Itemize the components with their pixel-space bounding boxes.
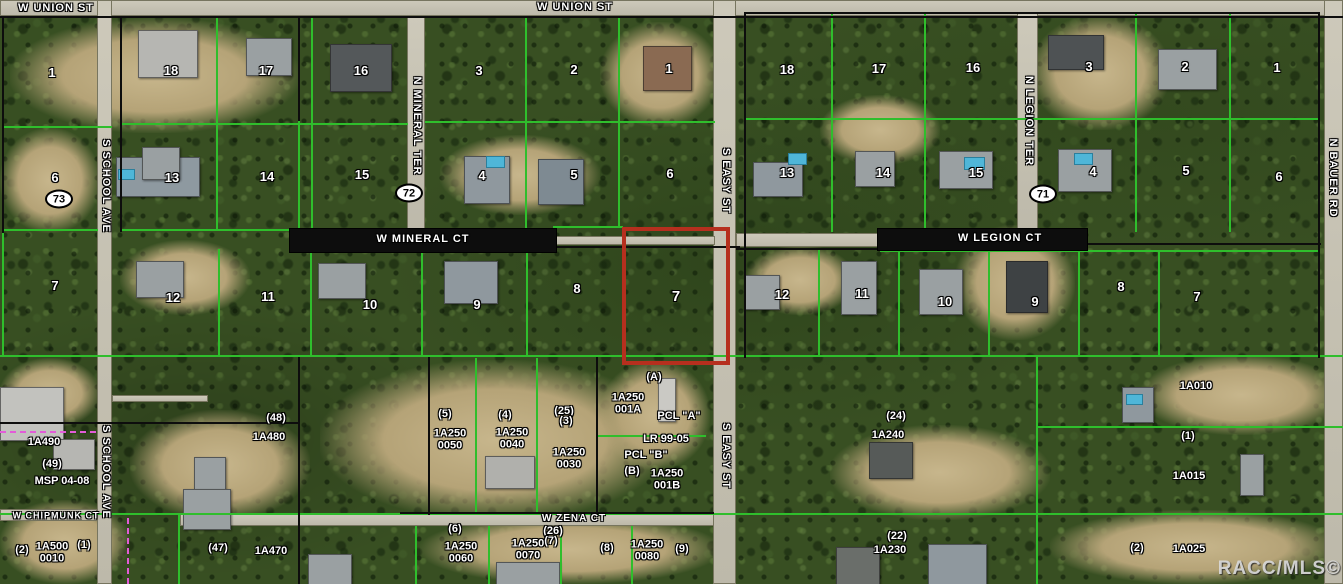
lot-number-13: 13: [780, 166, 794, 180]
lot-number-4: 4: [478, 169, 485, 183]
lot-number-18: 18: [780, 63, 794, 77]
section-marker-73: 73: [45, 190, 73, 209]
parcel-id-5: (5): [438, 409, 451, 421]
boundary-line: [1318, 12, 1320, 358]
street-label-w-zena-ct: W ZENA CT: [542, 514, 606, 525]
house: [183, 489, 231, 530]
parcel-line: [415, 526, 417, 584]
parcel-id-msp-04-08: MSP 04-08: [35, 476, 90, 488]
clearing: [830, 425, 1050, 520]
parcel-id-b: (B): [624, 466, 639, 478]
parcel-line: [488, 526, 490, 584]
parcel-line: [526, 249, 528, 357]
boundary-line: [0, 16, 1343, 18]
parcel-line: [310, 249, 312, 357]
house: [1122, 387, 1154, 423]
house: [753, 162, 803, 197]
lot-number-15: 15: [355, 168, 369, 182]
parcel-line: [120, 123, 408, 125]
house: [318, 263, 366, 299]
boundary-line: [120, 16, 122, 232]
parcel-id-2: (2): [1130, 543, 1143, 555]
house: [928, 544, 987, 584]
boundary-line: [2, 16, 4, 233]
parcel-id-1: (1): [1181, 431, 1194, 443]
boundary-line: [744, 12, 1320, 14]
pool: [486, 156, 505, 168]
street-label-n-mineral-ter: N MINERAL TER: [410, 77, 422, 176]
pool: [1126, 394, 1143, 405]
house: [1006, 261, 1048, 313]
parcel-id-1a490: 1A490: [28, 437, 60, 449]
lot-number-10: 10: [938, 295, 952, 309]
parcel-id-lr-99-05: LR 99-05: [643, 434, 689, 446]
lot-number-14: 14: [260, 170, 274, 184]
parcel-id-1a250-0080: 1A250 0080: [631, 539, 663, 562]
lot-number-11: 11: [261, 290, 275, 304]
parcel-id-1a500-0010: 1A500 0010: [36, 541, 68, 564]
parcel-id-1a015: 1A015: [1173, 471, 1205, 483]
boundary-line: [744, 12, 746, 358]
section-marker-71: 71: [1029, 185, 1057, 204]
boundary-line: [298, 357, 300, 584]
lot-number-15: 15: [969, 166, 983, 180]
parcel-line: [1078, 250, 1080, 357]
parcel-id-6: (6): [448, 524, 461, 536]
parcel-id-22: (22): [887, 531, 907, 543]
parcel-id-47: (47): [208, 543, 228, 555]
parcel-id-1a250-0030: 1A250 0030: [553, 447, 585, 470]
parcel-id-pcl-b: PCL "B": [624, 450, 667, 462]
parcel-line: [898, 250, 900, 357]
road-n-bauer-rd: [1324, 0, 1343, 584]
parcel-line: [311, 16, 313, 231]
boundary-line: [596, 357, 598, 515]
house: [496, 562, 560, 584]
lot-number-16: 16: [966, 61, 980, 75]
lot-number-6: 6: [1275, 170, 1282, 184]
highlighted-parcel: 7: [622, 227, 730, 365]
street-label-n-legion-ter: N LEGION TER: [1022, 76, 1034, 166]
lot-number-6: 6: [666, 167, 673, 181]
parcel-id-1: (1): [77, 540, 90, 552]
street-label-w-union-st: W UNION ST: [537, 2, 613, 14]
clearing: [1140, 355, 1343, 435]
lot-number-8: 8: [573, 282, 580, 296]
road-w-zena-ct: [180, 514, 714, 526]
parcel-id-8: (8): [600, 543, 613, 555]
driveway: [112, 395, 208, 402]
lot-number-12: 12: [775, 288, 789, 302]
parcel-line: [298, 120, 300, 230]
parcel-line: [120, 229, 292, 231]
parcel-line: [2, 229, 98, 231]
parcel-id-1a250-0040: 1A250 0040: [496, 427, 528, 450]
parcel-line: [988, 250, 990, 357]
street-label-s-easy-st: S EASY ST: [719, 423, 731, 489]
section-marker-72: 72: [395, 184, 423, 203]
parcel-line: [831, 12, 833, 232]
survey-line: [0, 431, 96, 433]
parcel-id-9: (9): [675, 544, 688, 556]
parcel-id-48: (48): [266, 413, 286, 425]
highlighted-parcel-number: 7: [672, 288, 680, 305]
house: [1240, 454, 1264, 496]
lot-number-16: 16: [354, 64, 368, 78]
parcel-id-1a250-001b: 1A250 001B: [651, 468, 683, 491]
lot-number-3: 3: [475, 64, 482, 78]
street-label-w-chipmunk-ct: W CHIPMUNK CT: [13, 511, 100, 520]
survey-line: [127, 518, 129, 584]
lot-number-17: 17: [259, 64, 273, 78]
parcel-id-1a250-0050: 1A250 0050: [434, 428, 466, 451]
house: [1048, 35, 1104, 70]
lot-number-2: 2: [570, 63, 577, 77]
parcel-id-7: (7): [544, 536, 557, 548]
house: [485, 456, 535, 489]
parcel-line: [178, 515, 180, 584]
lot-number-5: 5: [1182, 164, 1189, 178]
lot-number-6: 6: [51, 171, 58, 185]
clearing: [1030, 15, 1170, 130]
house: [444, 261, 498, 304]
lot-number-14: 14: [876, 166, 890, 180]
parcel-id-2: (2): [15, 545, 28, 557]
clearing: [0, 128, 100, 233]
parcel-id-49: (49): [42, 459, 62, 471]
parcel-id-pcl-a: PCL "A": [657, 411, 700, 423]
lot-number-7: 7: [51, 279, 58, 293]
parcel-line: [216, 16, 218, 231]
parcel-line: [536, 358, 538, 514]
parcel-id-1a480: 1A480: [253, 432, 285, 444]
boundary-line: [298, 16, 300, 121]
parcel-id-1a250-001a: 1A250 001A: [612, 392, 644, 415]
lot-number-9: 9: [1031, 295, 1038, 309]
parcel-line: [618, 16, 620, 228]
parcel-line: [475, 358, 477, 514]
parcel-id-4: (4): [498, 410, 511, 422]
parcel-line: [2, 126, 112, 128]
lot-number-8: 8: [1117, 280, 1124, 294]
lot-number-17: 17: [872, 62, 886, 76]
parcel-id-1a250-0060: 1A250 0060: [445, 541, 477, 564]
lot-number-4: 4: [1089, 165, 1096, 179]
mls-watermark: RACC/MLS©: [1218, 558, 1341, 580]
parcel-id-1a025: 1A025: [1173, 544, 1205, 556]
parcel-line: [818, 250, 820, 357]
boundary-line: [0, 422, 300, 424]
parcel-line: [1229, 12, 1231, 232]
parcel-line: [421, 249, 423, 357]
parcel-id-a: (A): [646, 372, 661, 384]
lot-number-7: 7: [1193, 290, 1200, 304]
pool: [788, 153, 807, 165]
lot-number-11: 11: [855, 287, 869, 301]
aerial-parcel-map: 7 RACC/MLS© W UNION STW UNION STS SCHOOL…: [0, 0, 1343, 584]
parcel-id-1a470: 1A470: [255, 546, 287, 558]
lot-number-1: 1: [1273, 61, 1280, 75]
street-label-s-school-ave: S SCHOOL AVE: [99, 139, 111, 233]
parcel-id-1a250-0070: 1A250 0070: [512, 538, 544, 561]
parcel-line: [553, 226, 623, 228]
lot-number-5: 5: [570, 168, 577, 182]
boundary-line: [1085, 243, 1321, 245]
parcel-line: [1036, 426, 1343, 428]
parcel-id-24: (24): [886, 411, 906, 423]
parcel-line: [1135, 12, 1137, 232]
lot-number-13: 13: [165, 171, 179, 185]
street-label-w-union-st: W UNION ST: [18, 3, 94, 15]
lot-number-1: 1: [665, 62, 672, 76]
lot-number-10: 10: [363, 298, 377, 312]
lot-number-12: 12: [166, 291, 180, 305]
parcel-line: [218, 249, 220, 357]
parcel-id-1a010: 1A010: [1180, 381, 1212, 393]
street-label-w-legion-ct: W LEGION CT: [958, 233, 1042, 245]
parcel-line: [425, 121, 715, 123]
lot-number-9: 9: [473, 298, 480, 312]
house: [308, 554, 352, 584]
parcel-id-1a230: 1A230: [874, 545, 906, 557]
house: [869, 442, 913, 479]
lot-number-2: 2: [1181, 60, 1188, 74]
parcel-line: [1158, 250, 1160, 357]
lot-number-3: 3: [1085, 60, 1092, 74]
street-label-n-bauer-rd: N BAUER RD: [1326, 138, 1338, 217]
street-label-w-mineral-ct: W MINERAL CT: [376, 234, 469, 246]
boundary-line: [428, 357, 430, 515]
boundary-line: [736, 248, 882, 250]
lot-number-1: 1: [48, 66, 55, 80]
street-label-s-easy-st: S EASY ST: [719, 148, 731, 214]
lot-number-18: 18: [164, 64, 178, 78]
parcel-line: [924, 12, 926, 232]
parcel-line: [525, 16, 527, 228]
parcel-id-3: (3): [559, 416, 572, 428]
street-label-s-school-ave: S SCHOOL AVE: [99, 425, 111, 519]
parcel-line: [1036, 357, 1038, 584]
parcel-id-1a240: 1A240: [872, 430, 904, 442]
